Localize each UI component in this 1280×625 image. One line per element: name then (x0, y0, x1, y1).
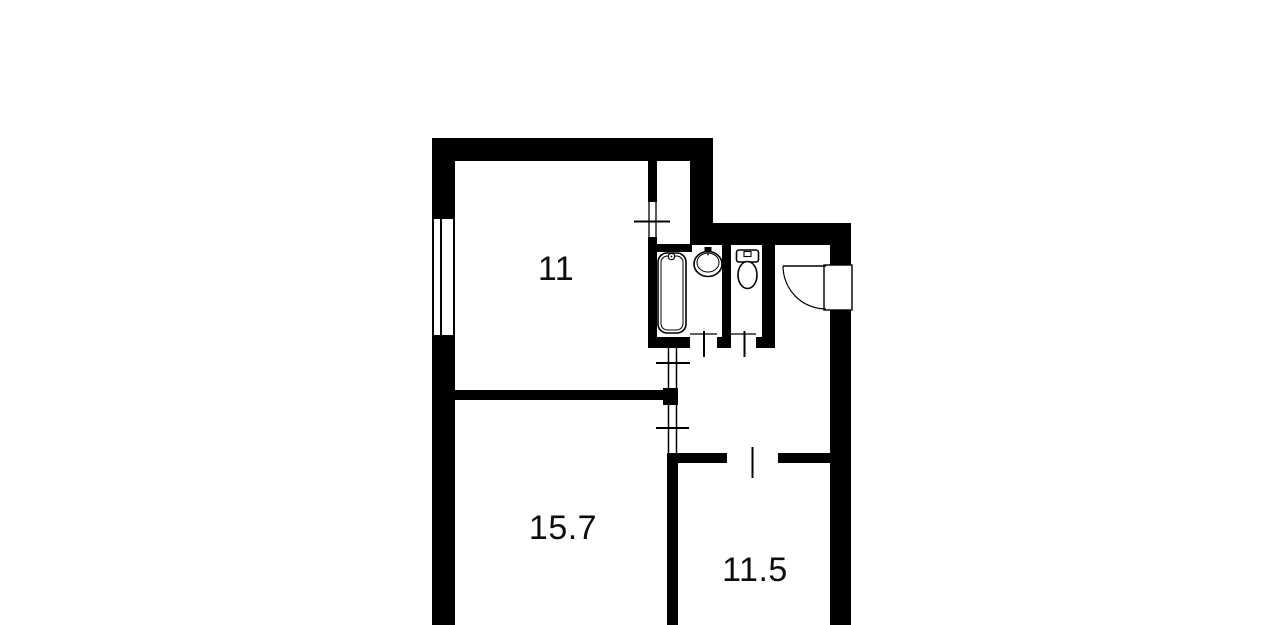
wall-rooms-divider (455, 390, 663, 400)
wall-right-above-door (830, 245, 851, 265)
wall-room11-east-upper (648, 161, 657, 202)
wall-bath-toilet-partition (722, 245, 731, 337)
wall-bottom-divider (667, 453, 678, 625)
sink-icon (694, 247, 722, 277)
entrance-door-icon (783, 265, 852, 310)
plan-linework (0, 0, 1280, 625)
floor-plan: 11 15.7 11.5 (0, 0, 1280, 625)
wall-left-upper (432, 138, 455, 217)
bathtub-icon (658, 253, 686, 333)
closet-doorway (649, 202, 656, 237)
window-glass-line (440, 219, 442, 335)
wall-toilet-east (762, 243, 775, 337)
wall-divider-end-block (663, 388, 678, 405)
wall-bathroom-bottom-b (717, 337, 731, 348)
wall-left-lower (432, 337, 455, 625)
toilet-icon (737, 250, 759, 289)
room-label-11-5: 11.5 (722, 553, 788, 587)
room-label-15-7: 15.7 (529, 511, 597, 545)
wall-room11-east-lower (648, 237, 657, 338)
wall-top (432, 138, 713, 161)
wall-bathroom-bottom-a (648, 337, 690, 348)
wall-bathroom-top (648, 244, 692, 252)
wall-right-below-door (830, 310, 851, 625)
wall-north-of-hall (690, 223, 851, 245)
window (432, 217, 455, 337)
wall-bathroom-bottom-c (756, 337, 775, 348)
room-label-11: 11 (538, 252, 574, 286)
wall-hall-south-b (778, 453, 830, 463)
